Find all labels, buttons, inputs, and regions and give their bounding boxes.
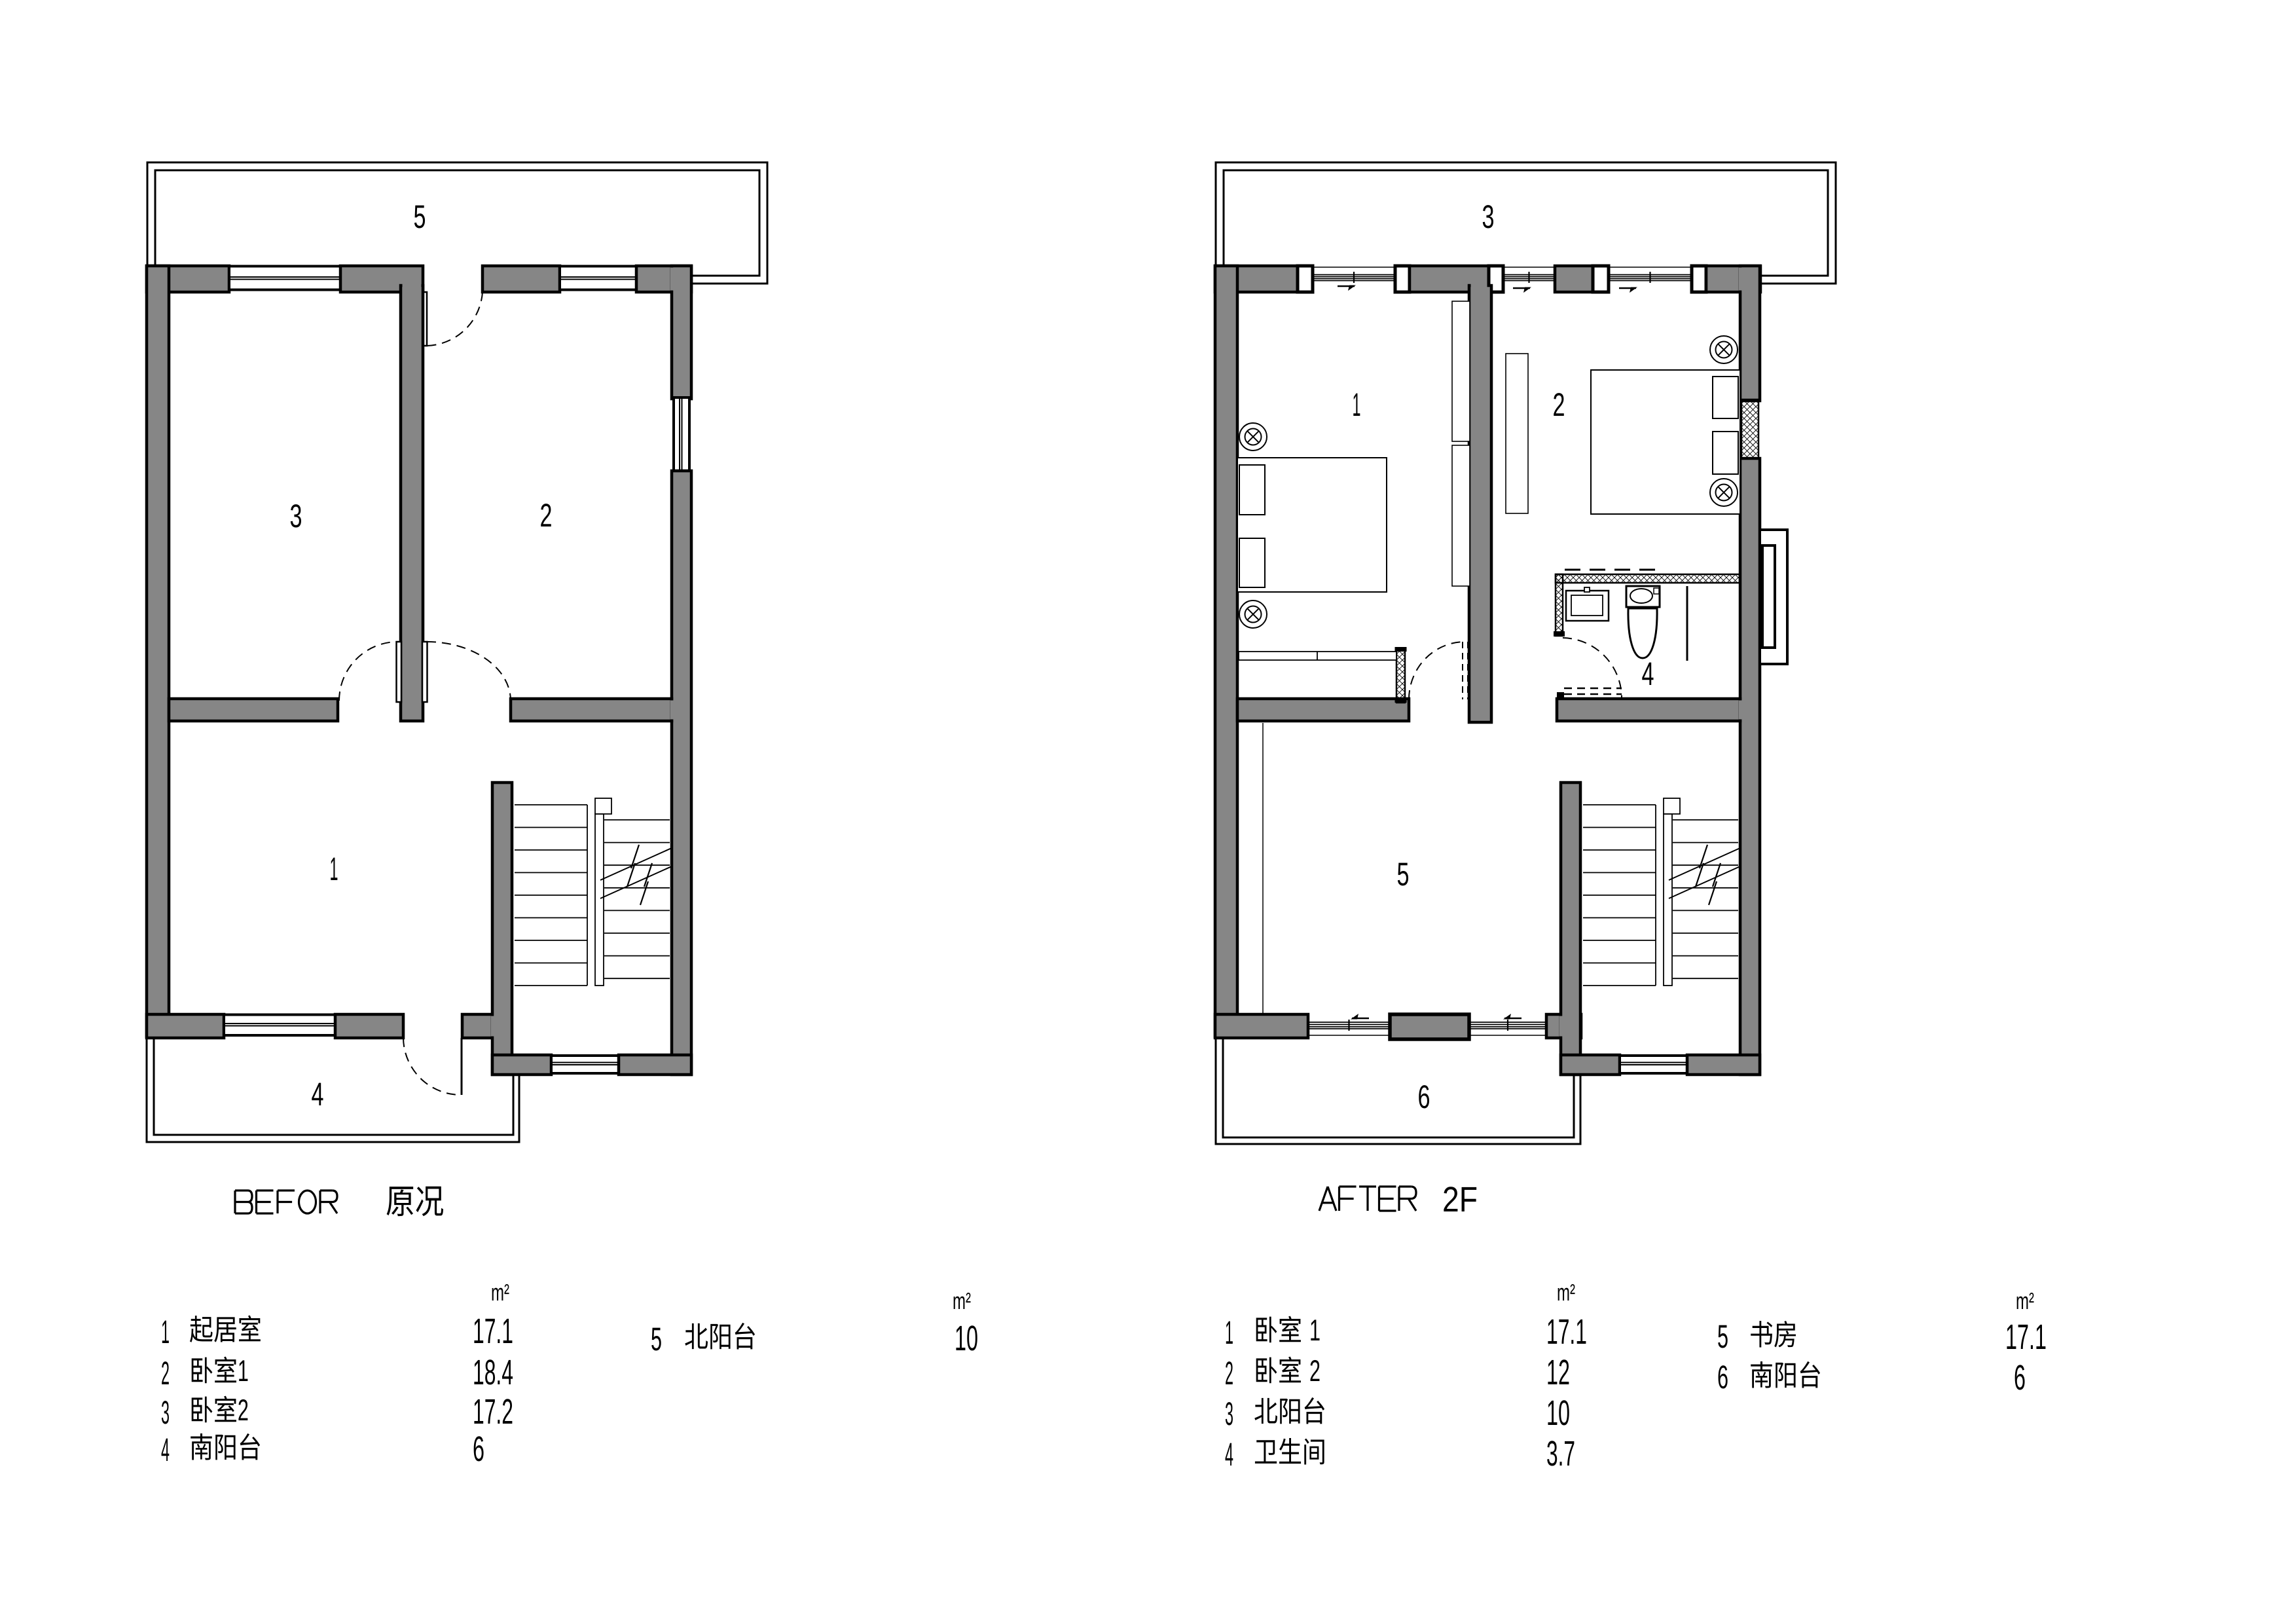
svg-text:10: 10 (955, 1319, 978, 1358)
svg-text:17.1: 17.1 (473, 1312, 513, 1351)
svg-text:2: 2 (1225, 1355, 1233, 1392)
svg-text:3.7: 3.7 (1546, 1434, 1575, 1473)
svg-text:12: 12 (1546, 1353, 1570, 1392)
svg-text:6: 6 (2014, 1358, 2026, 1397)
svg-text:17.2: 17.2 (473, 1392, 513, 1431)
svg-text:5: 5 (651, 1321, 662, 1357)
svg-text:6: 6 (1418, 1079, 1430, 1115)
svg-text:2: 2 (161, 1355, 170, 1392)
svg-text:1: 1 (161, 1314, 170, 1350)
svg-text:4: 4 (161, 1431, 170, 1468)
svg-text:1: 1 (238, 1354, 249, 1388)
svg-text:2: 2 (1553, 386, 1565, 423)
svg-text:2: 2 (1309, 1354, 1321, 1388)
svg-text:1: 1 (1353, 386, 1361, 423)
svg-text:4: 4 (1225, 1436, 1233, 1473)
svg-text:2: 2 (238, 1393, 249, 1427)
svg-text:18.4: 18.4 (473, 1353, 513, 1392)
svg-text:3: 3 (1482, 198, 1495, 235)
svg-text:17.1: 17.1 (2005, 1318, 2047, 1357)
svg-text:1: 1 (1225, 1314, 1233, 1351)
svg-text:1: 1 (330, 851, 338, 887)
svg-text:m²: m² (1557, 1279, 1575, 1306)
svg-text:m²: m² (491, 1279, 509, 1306)
svg-text:2F: 2F (1442, 1180, 1478, 1219)
svg-text:5: 5 (414, 198, 426, 235)
svg-text:4: 4 (312, 1076, 324, 1113)
svg-text:6: 6 (473, 1430, 484, 1469)
svg-text:3: 3 (290, 498, 302, 534)
svg-text:3: 3 (1225, 1395, 1233, 1432)
svg-text:17.1: 17.1 (1546, 1312, 1587, 1352)
svg-text:5: 5 (1397, 856, 1410, 893)
svg-text:4: 4 (1642, 655, 1654, 692)
svg-text:2: 2 (540, 497, 553, 534)
svg-text:5: 5 (1717, 1318, 1728, 1355)
svg-text:m²: m² (2016, 1287, 2034, 1314)
svg-text:1: 1 (1309, 1313, 1321, 1347)
svg-text:3: 3 (161, 1394, 170, 1431)
svg-text:6: 6 (1717, 1359, 1728, 1395)
svg-text:10: 10 (1546, 1393, 1570, 1433)
svg-text:m²: m² (953, 1287, 971, 1314)
